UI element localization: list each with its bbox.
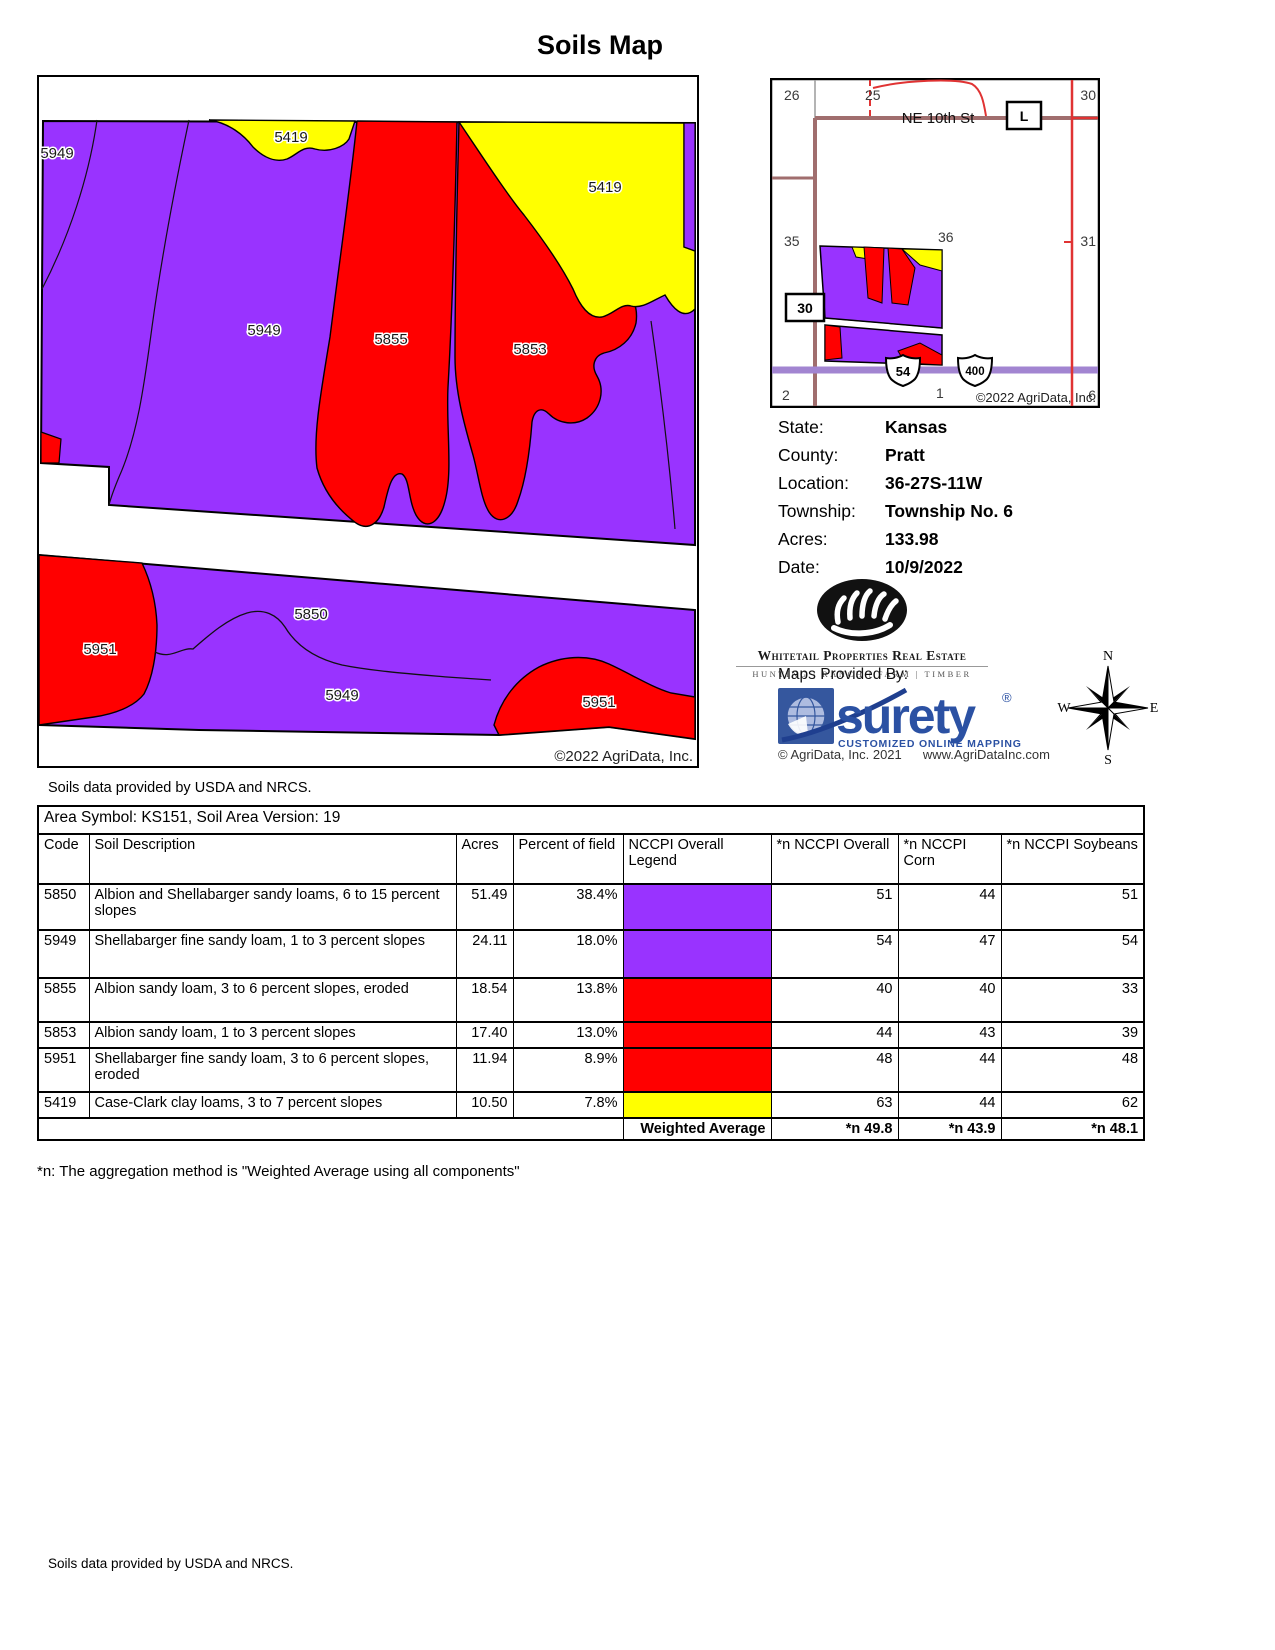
column-header: Soil Description xyxy=(89,834,456,884)
bottom-note: Soils data provided by USDA and NRCS. xyxy=(48,1556,293,1571)
compass-w: W xyxy=(1057,701,1071,716)
soils-map: 5949 5419 5419 5949 5855 5853 5850 5951 … xyxy=(37,75,699,768)
section-number: 35 xyxy=(784,233,800,249)
cell-nccpi-overall: 40 xyxy=(771,978,898,1022)
info-label: County: xyxy=(778,441,885,469)
page-title: Soils Map xyxy=(0,30,1200,61)
cell-percent: 13.8% xyxy=(513,978,623,1022)
cell-percent: 13.0% xyxy=(513,1022,623,1048)
cell-nccpi-corn: 47 xyxy=(898,930,1001,978)
soils-map-canvas: 5949 5419 5419 5949 5855 5853 5850 5951 … xyxy=(39,77,697,766)
agridata-copyright: © AgriData, Inc. 2021 xyxy=(778,747,902,762)
cell-nccpi-overall: 63 xyxy=(771,1092,898,1118)
cell-legend-swatch xyxy=(623,1022,771,1048)
soil-code-label: 5951 xyxy=(83,641,116,658)
soil-region-purple-sliver xyxy=(684,123,695,251)
soil-code-label: 5419 xyxy=(588,179,621,196)
info-value: Kansas xyxy=(885,417,947,437)
table-row: 5855 Albion sandy loam, 3 to 6 percent s… xyxy=(38,978,1144,1022)
section-number: 26 xyxy=(784,87,800,103)
cell-nccpi-corn: 43 xyxy=(898,1022,1001,1048)
property-info: State:Kansas County:Pratt Location:36-27… xyxy=(778,413,1013,581)
column-header: Code xyxy=(38,834,89,884)
cell-description: Shellabarger fine sandy loam, 3 to 6 per… xyxy=(89,1048,456,1092)
cell-nccpi-soybeans: 54 xyxy=(1001,930,1144,978)
column-header: *n NCCPI Overall xyxy=(771,834,898,884)
compass-rose: N W E S xyxy=(1056,648,1162,766)
svg-text:400: 400 xyxy=(965,366,984,378)
cell-legend-swatch xyxy=(623,1092,771,1118)
section-number: 36 xyxy=(938,229,954,245)
cell-nccpi-overall: 51 xyxy=(771,884,898,930)
table-row: 5951 Shellabarger fine sandy loam, 3 to … xyxy=(38,1048,1144,1092)
cell-nccpi-soybeans: 62 xyxy=(1001,1092,1144,1118)
cell-percent: 8.9% xyxy=(513,1048,623,1092)
surety-wordmark: surety xyxy=(836,688,976,744)
info-label: State: xyxy=(778,413,885,441)
info-value: 133.98 xyxy=(885,529,939,549)
cell-nccpi-overall: 44 xyxy=(771,1022,898,1048)
cell-percent: 7.8% xyxy=(513,1092,623,1118)
info-value: Pratt xyxy=(885,445,925,465)
info-row: State:Kansas xyxy=(778,413,1013,441)
cell-acres: 24.11 xyxy=(456,930,513,978)
registered-mark: ® xyxy=(1002,690,1012,705)
soils-table: Area Symbol: KS151, Soil Area Version: 1… xyxy=(37,805,1145,1141)
cell-legend-swatch xyxy=(623,884,771,930)
soil-code-label: 5419 xyxy=(274,129,307,146)
cell-acres: 17.40 xyxy=(456,1022,513,1048)
agridata-website: www.AgriDataInc.com xyxy=(923,747,1050,762)
info-label: Township: xyxy=(778,497,885,525)
info-row: Location:36-27S-11W xyxy=(778,469,1013,497)
soils-map-report-page: Soils Map xyxy=(0,0,1275,1650)
surety-logo-canvas: surety ® CUSTOMIZED ONLINE MAPPING xyxy=(778,686,1046,750)
cell-nccpi-overall: 54 xyxy=(771,930,898,978)
inset-mini-soils-map xyxy=(820,246,942,365)
cell-description: Shellabarger fine sandy loam, 1 to 3 per… xyxy=(89,930,456,978)
soil-code-label: 5951 xyxy=(582,694,615,711)
soil-code-label: 5949 xyxy=(40,145,73,162)
location-inset-map: 26 25 30 35 36 31 2 1 6 NE 10th St L 30 xyxy=(770,78,1100,408)
weighted-average-overall: *n 49.8 xyxy=(771,1118,898,1140)
section-number: 1 xyxy=(936,385,944,401)
cell-acres: 18.54 xyxy=(456,978,513,1022)
svg-text:30: 30 xyxy=(797,300,813,316)
cell-code: 5949 xyxy=(38,930,89,978)
weighted-average-corn: *n 43.9 xyxy=(898,1118,1001,1140)
cell-nccpi-corn: 44 xyxy=(898,1092,1001,1118)
cell-percent: 38.4% xyxy=(513,884,623,930)
section-number: 31 xyxy=(1080,233,1096,249)
cell-acres: 11.94 xyxy=(456,1048,513,1092)
column-header: *n NCCPI Corn xyxy=(898,834,1001,884)
info-label: Location: xyxy=(778,469,885,497)
surety-logo: surety ® CUSTOMIZED ONLINE MAPPING xyxy=(778,686,1046,750)
soil-region-5951-left xyxy=(39,555,157,725)
cell-nccpi-corn: 44 xyxy=(898,884,1001,930)
compass-e: E xyxy=(1150,701,1159,716)
weighted-average-row: Weighted Average *n 49.8 *n 43.9 *n 48.1 xyxy=(38,1118,1144,1140)
cell-legend-swatch xyxy=(623,930,771,978)
soil-code-label: 5949 xyxy=(325,687,358,704)
cell-acres: 10.50 xyxy=(456,1092,513,1118)
cell-description: Albion sandy loam, 1 to 3 percent slopes xyxy=(89,1022,456,1048)
weighted-average-label: Weighted Average xyxy=(623,1118,771,1140)
cell-code: 5855 xyxy=(38,978,89,1022)
cell-nccpi-soybeans: 39 xyxy=(1001,1022,1144,1048)
cell-code: 5853 xyxy=(38,1022,89,1048)
cell-nccpi-overall: 48 xyxy=(771,1048,898,1092)
cell-description: Albion and Shellabarger sandy loams, 6 t… xyxy=(89,884,456,930)
table-row: Area Symbol: KS151, Soil Area Version: 1… xyxy=(38,806,1144,834)
soils-table-container: Area Symbol: KS151, Soil Area Version: 1… xyxy=(37,805,1145,1141)
cell-legend-swatch xyxy=(623,1048,771,1092)
cell-percent: 18.0% xyxy=(513,930,623,978)
compass-icon: N W E S xyxy=(1056,648,1162,766)
area-symbol-cell: Area Symbol: KS151, Soil Area Version: 1… xyxy=(38,806,1144,834)
map-grid-label-l: L xyxy=(1007,102,1041,129)
inset-canvas: 26 25 30 35 36 31 2 1 6 NE 10th St L 30 xyxy=(770,78,1100,408)
table-row: 5949 Shellabarger fine sandy loam, 1 to … xyxy=(38,930,1144,978)
soil-code-label: 5949 xyxy=(247,322,280,339)
maps-provided-by-label: Maps Provided By: xyxy=(778,666,908,684)
soil-code-label: 5850 xyxy=(294,606,327,623)
cell-code: 5850 xyxy=(38,884,89,930)
whitetail-logo-block: Whitetail Properties Real Estate HUNTING… xyxy=(722,578,1002,679)
cell-code: 5419 xyxy=(38,1092,89,1118)
info-value: 36-27S-11W xyxy=(885,473,982,493)
cell-nccpi-soybeans: 51 xyxy=(1001,884,1144,930)
aggregation-footnote: *n: The aggregation method is "Weighted … xyxy=(37,1163,520,1180)
empty-cell xyxy=(38,1118,623,1140)
agridata-credit-line: © AgriData, Inc. 2021 www.AgriDataInc.co… xyxy=(778,747,1050,762)
table-header-row: Code Soil Description Acres Percent of f… xyxy=(38,834,1144,884)
cell-nccpi-soybeans: 33 xyxy=(1001,978,1144,1022)
under-map-note: Soils data provided by USDA and NRCS. xyxy=(48,780,312,796)
info-value: 10/9/2022 xyxy=(885,557,963,577)
compass-n: N xyxy=(1103,649,1113,664)
street-label: NE 10th St xyxy=(902,110,975,127)
table-row: 5419 Case-Clark clay loams, 3 to 7 perce… xyxy=(38,1092,1144,1118)
column-header: *n NCCPI Soybeans xyxy=(1001,834,1144,884)
cell-code: 5951 xyxy=(38,1048,89,1092)
inset-copyright: ©2022 AgriData, Inc. xyxy=(976,390,1096,405)
map-grid-label-30: 30 xyxy=(786,294,824,321)
cell-nccpi-corn: 40 xyxy=(898,978,1001,1022)
table-row: 5853 Albion sandy loam, 1 to 3 percent s… xyxy=(38,1022,1144,1048)
info-row: Date:10/9/2022 xyxy=(778,553,1013,581)
section-number: 30 xyxy=(1080,87,1096,103)
svg-text:L: L xyxy=(1020,108,1029,124)
info-row: County:Pratt xyxy=(778,441,1013,469)
soil-code-label: 5855 xyxy=(374,331,407,348)
table-row: 5850 Albion and Shellabarger sandy loams… xyxy=(38,884,1144,930)
compass-s: S xyxy=(1104,753,1112,766)
map-copyright: ©2022 AgriData, Inc. xyxy=(554,748,693,765)
info-label: Date: xyxy=(778,553,885,581)
cell-description: Albion sandy loam, 3 to 6 percent slopes… xyxy=(89,978,456,1022)
info-row: Township:Township No. 6 xyxy=(778,497,1013,525)
column-header: NCCPI Overall Legend xyxy=(623,834,771,884)
column-header: Percent of field xyxy=(513,834,623,884)
svg-text:54: 54 xyxy=(896,364,911,379)
whitetail-name: Whitetail Properties Real Estate xyxy=(722,648,1002,664)
cell-legend-swatch xyxy=(623,978,771,1022)
cell-description: Case-Clark clay loams, 3 to 7 percent sl… xyxy=(89,1092,456,1118)
soil-code-label: 5853 xyxy=(513,341,546,358)
column-header: Acres xyxy=(456,834,513,884)
weighted-average-soybeans: *n 48.1 xyxy=(1001,1118,1144,1140)
cell-acres: 51.49 xyxy=(456,884,513,930)
section-number: 25 xyxy=(865,87,881,103)
bear-paw-icon xyxy=(816,578,908,642)
info-row: Acres:133.98 xyxy=(778,525,1013,553)
info-value: Township No. 6 xyxy=(885,501,1013,521)
cell-nccpi-corn: 44 xyxy=(898,1048,1001,1092)
section-number: 2 xyxy=(782,387,790,403)
info-label: Acres: xyxy=(778,525,885,553)
cell-nccpi-soybeans: 48 xyxy=(1001,1048,1144,1092)
